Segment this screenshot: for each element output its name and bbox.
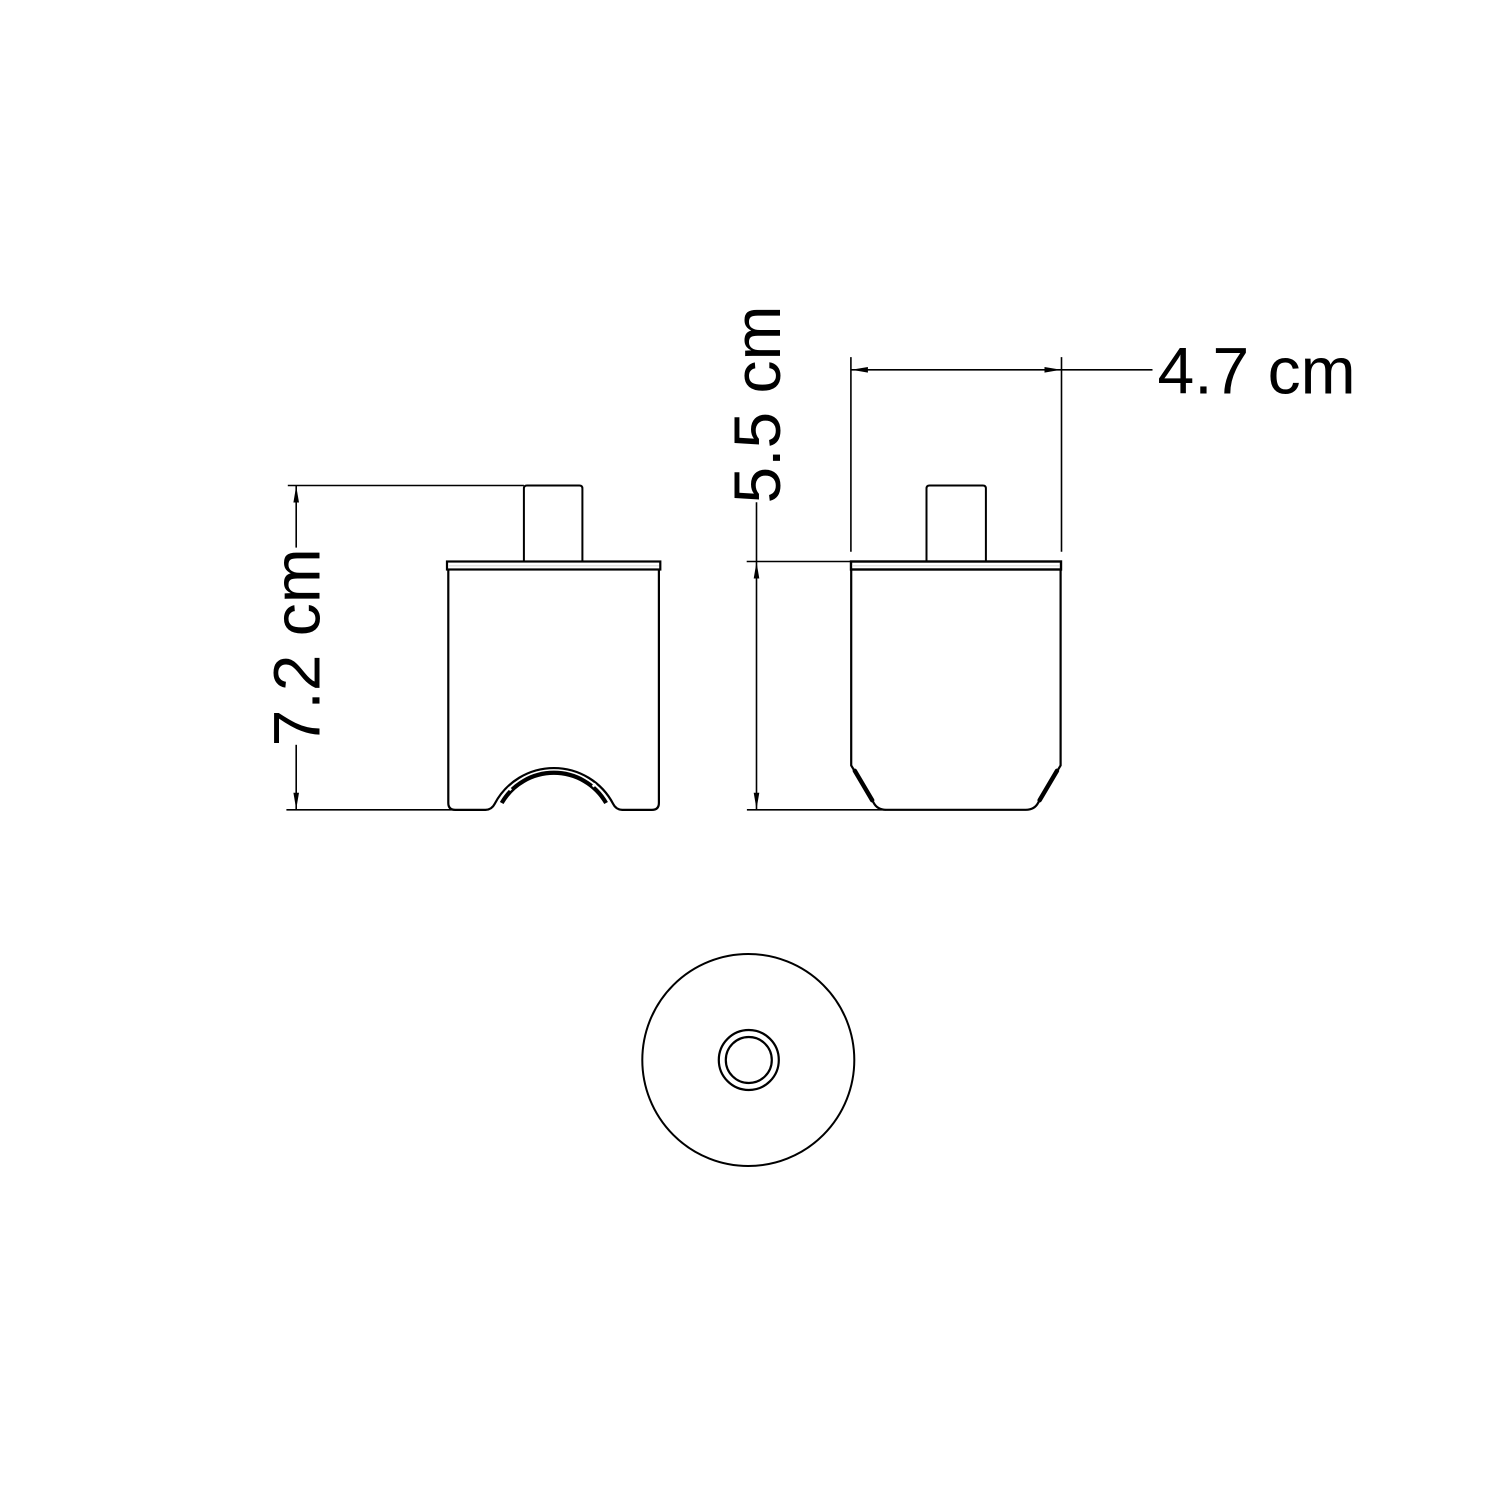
svg-text:5.5 cm: 5.5 cm	[720, 305, 794, 503]
svg-text:7.2 cm: 7.2 cm	[260, 548, 334, 746]
svg-text:4.7 cm: 4.7 cm	[1158, 334, 1356, 408]
